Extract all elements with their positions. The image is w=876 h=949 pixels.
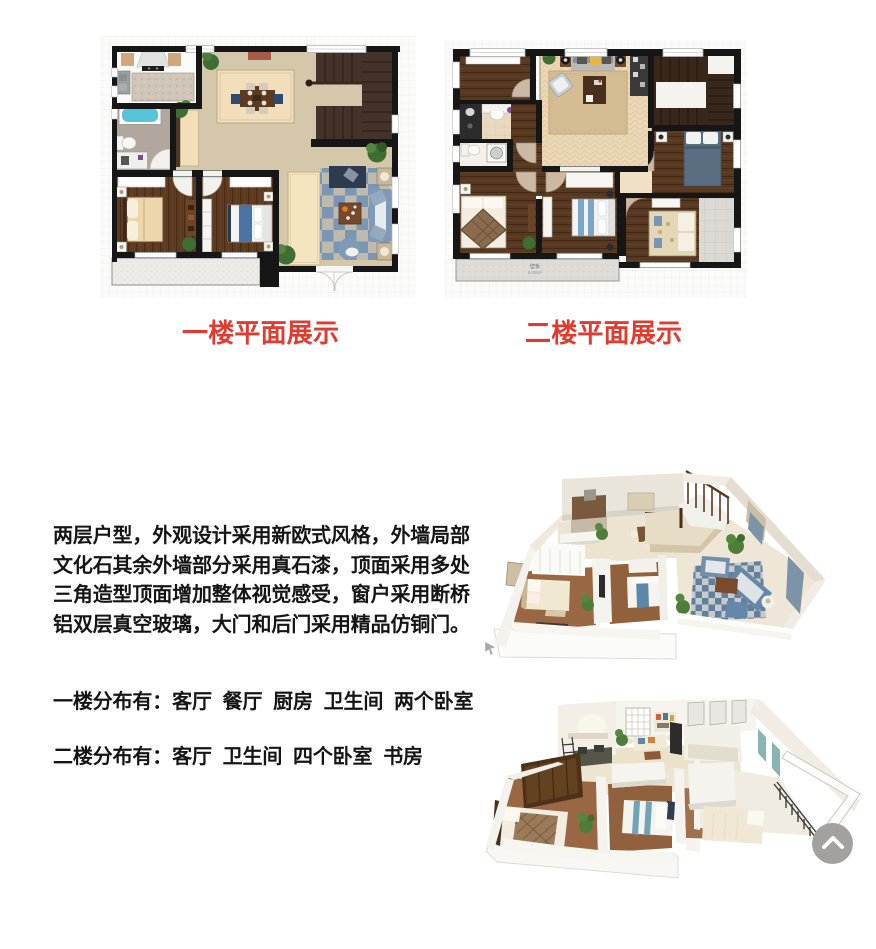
svg-text:6.08m²: 6.08m² <box>528 270 543 275</box>
svg-text:壁板: 壁板 <box>530 263 540 270</box>
